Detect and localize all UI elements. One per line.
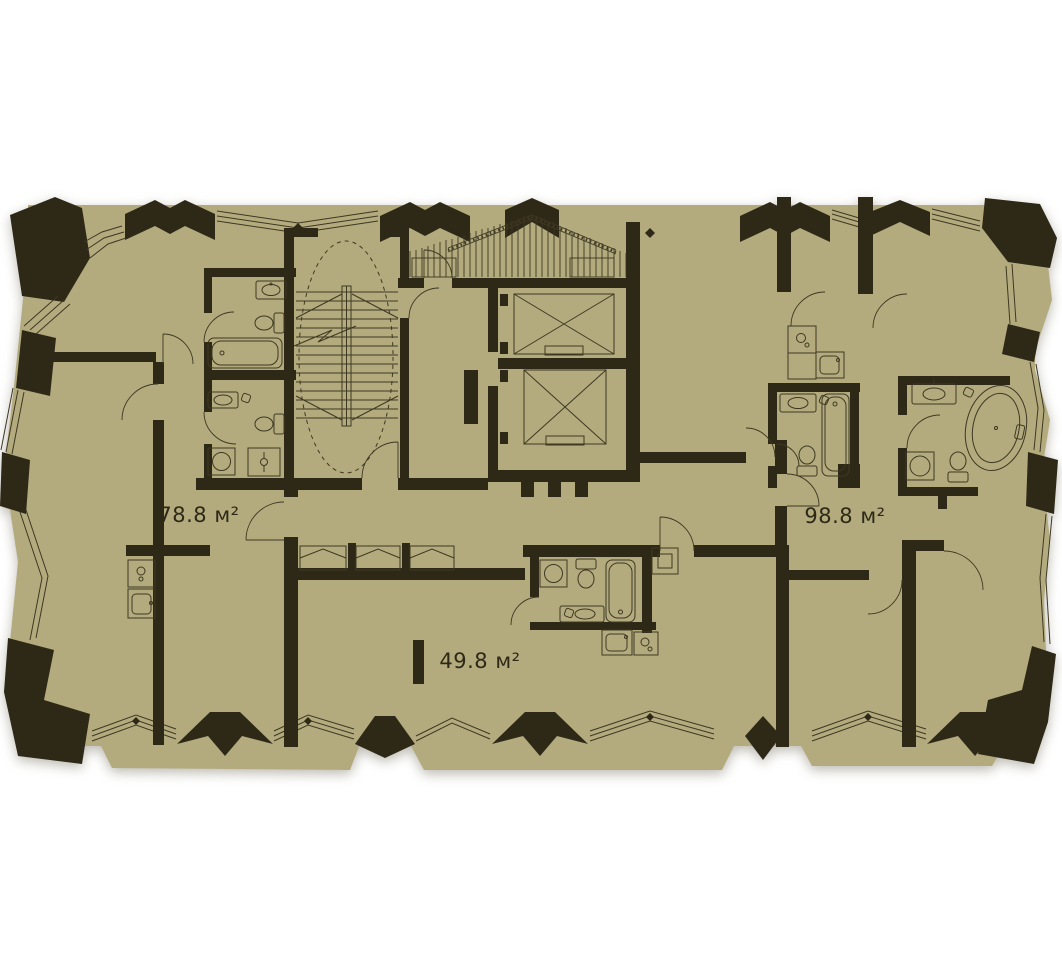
wall [398, 478, 488, 490]
vent-shaft [548, 482, 561, 497]
wall-stub [413, 640, 424, 684]
wall [938, 487, 947, 509]
wall [488, 278, 498, 352]
area-label-apartment-1: 78.8 м² [158, 503, 239, 527]
wall [284, 228, 318, 237]
elevator-door-jamb [500, 432, 508, 444]
elevator-door-jamb [500, 294, 508, 306]
wall [294, 478, 362, 490]
wall [28, 352, 156, 362]
wall [640, 452, 746, 463]
area-label-apartment-3: 49.8 м² [439, 649, 520, 673]
wall [400, 318, 409, 480]
wall [768, 392, 777, 444]
wall [523, 545, 660, 557]
facade-pier-left [0, 452, 30, 514]
wall [348, 543, 356, 569]
elevator-door-jamb [500, 370, 508, 382]
wall [498, 358, 626, 369]
wall [768, 383, 860, 392]
facade-pier-left [16, 330, 56, 396]
wall [204, 370, 296, 380]
wall [642, 545, 652, 633]
vent-shaft [521, 482, 534, 497]
wall [779, 570, 869, 580]
elevator-door-jamb [500, 342, 508, 354]
wall [464, 370, 478, 424]
vent-shaft [575, 482, 588, 497]
wall [530, 622, 656, 630]
wall [204, 268, 296, 277]
wall [626, 222, 640, 482]
balcony-slab [410, 744, 735, 770]
wall [898, 385, 907, 415]
wall [902, 545, 916, 747]
wall [777, 197, 791, 292]
wall [204, 277, 212, 313]
wall [530, 557, 539, 597]
wall [858, 197, 873, 294]
wall [398, 278, 424, 288]
floor-plan: 78.8 м² 98.8 м² 49.8 м² [0, 197, 1058, 770]
wall [768, 466, 777, 488]
wall [488, 470, 638, 482]
floor-plan-svg: 78.8 м² 98.8 м² 49.8 м² [0, 0, 1062, 960]
wall [284, 228, 294, 480]
wall [694, 545, 780, 557]
wall [153, 362, 164, 384]
wall [126, 545, 210, 556]
wall [452, 278, 638, 288]
facade-pier-right [1026, 452, 1058, 514]
wall [196, 478, 300, 490]
wall [775, 506, 787, 548]
wall [488, 386, 498, 482]
area-label-apartment-2: 98.8 м² [804, 504, 885, 528]
wall [402, 543, 410, 569]
floor-plan-page: 78.8 м² 98.8 м² 49.8 м² [0, 0, 1062, 960]
